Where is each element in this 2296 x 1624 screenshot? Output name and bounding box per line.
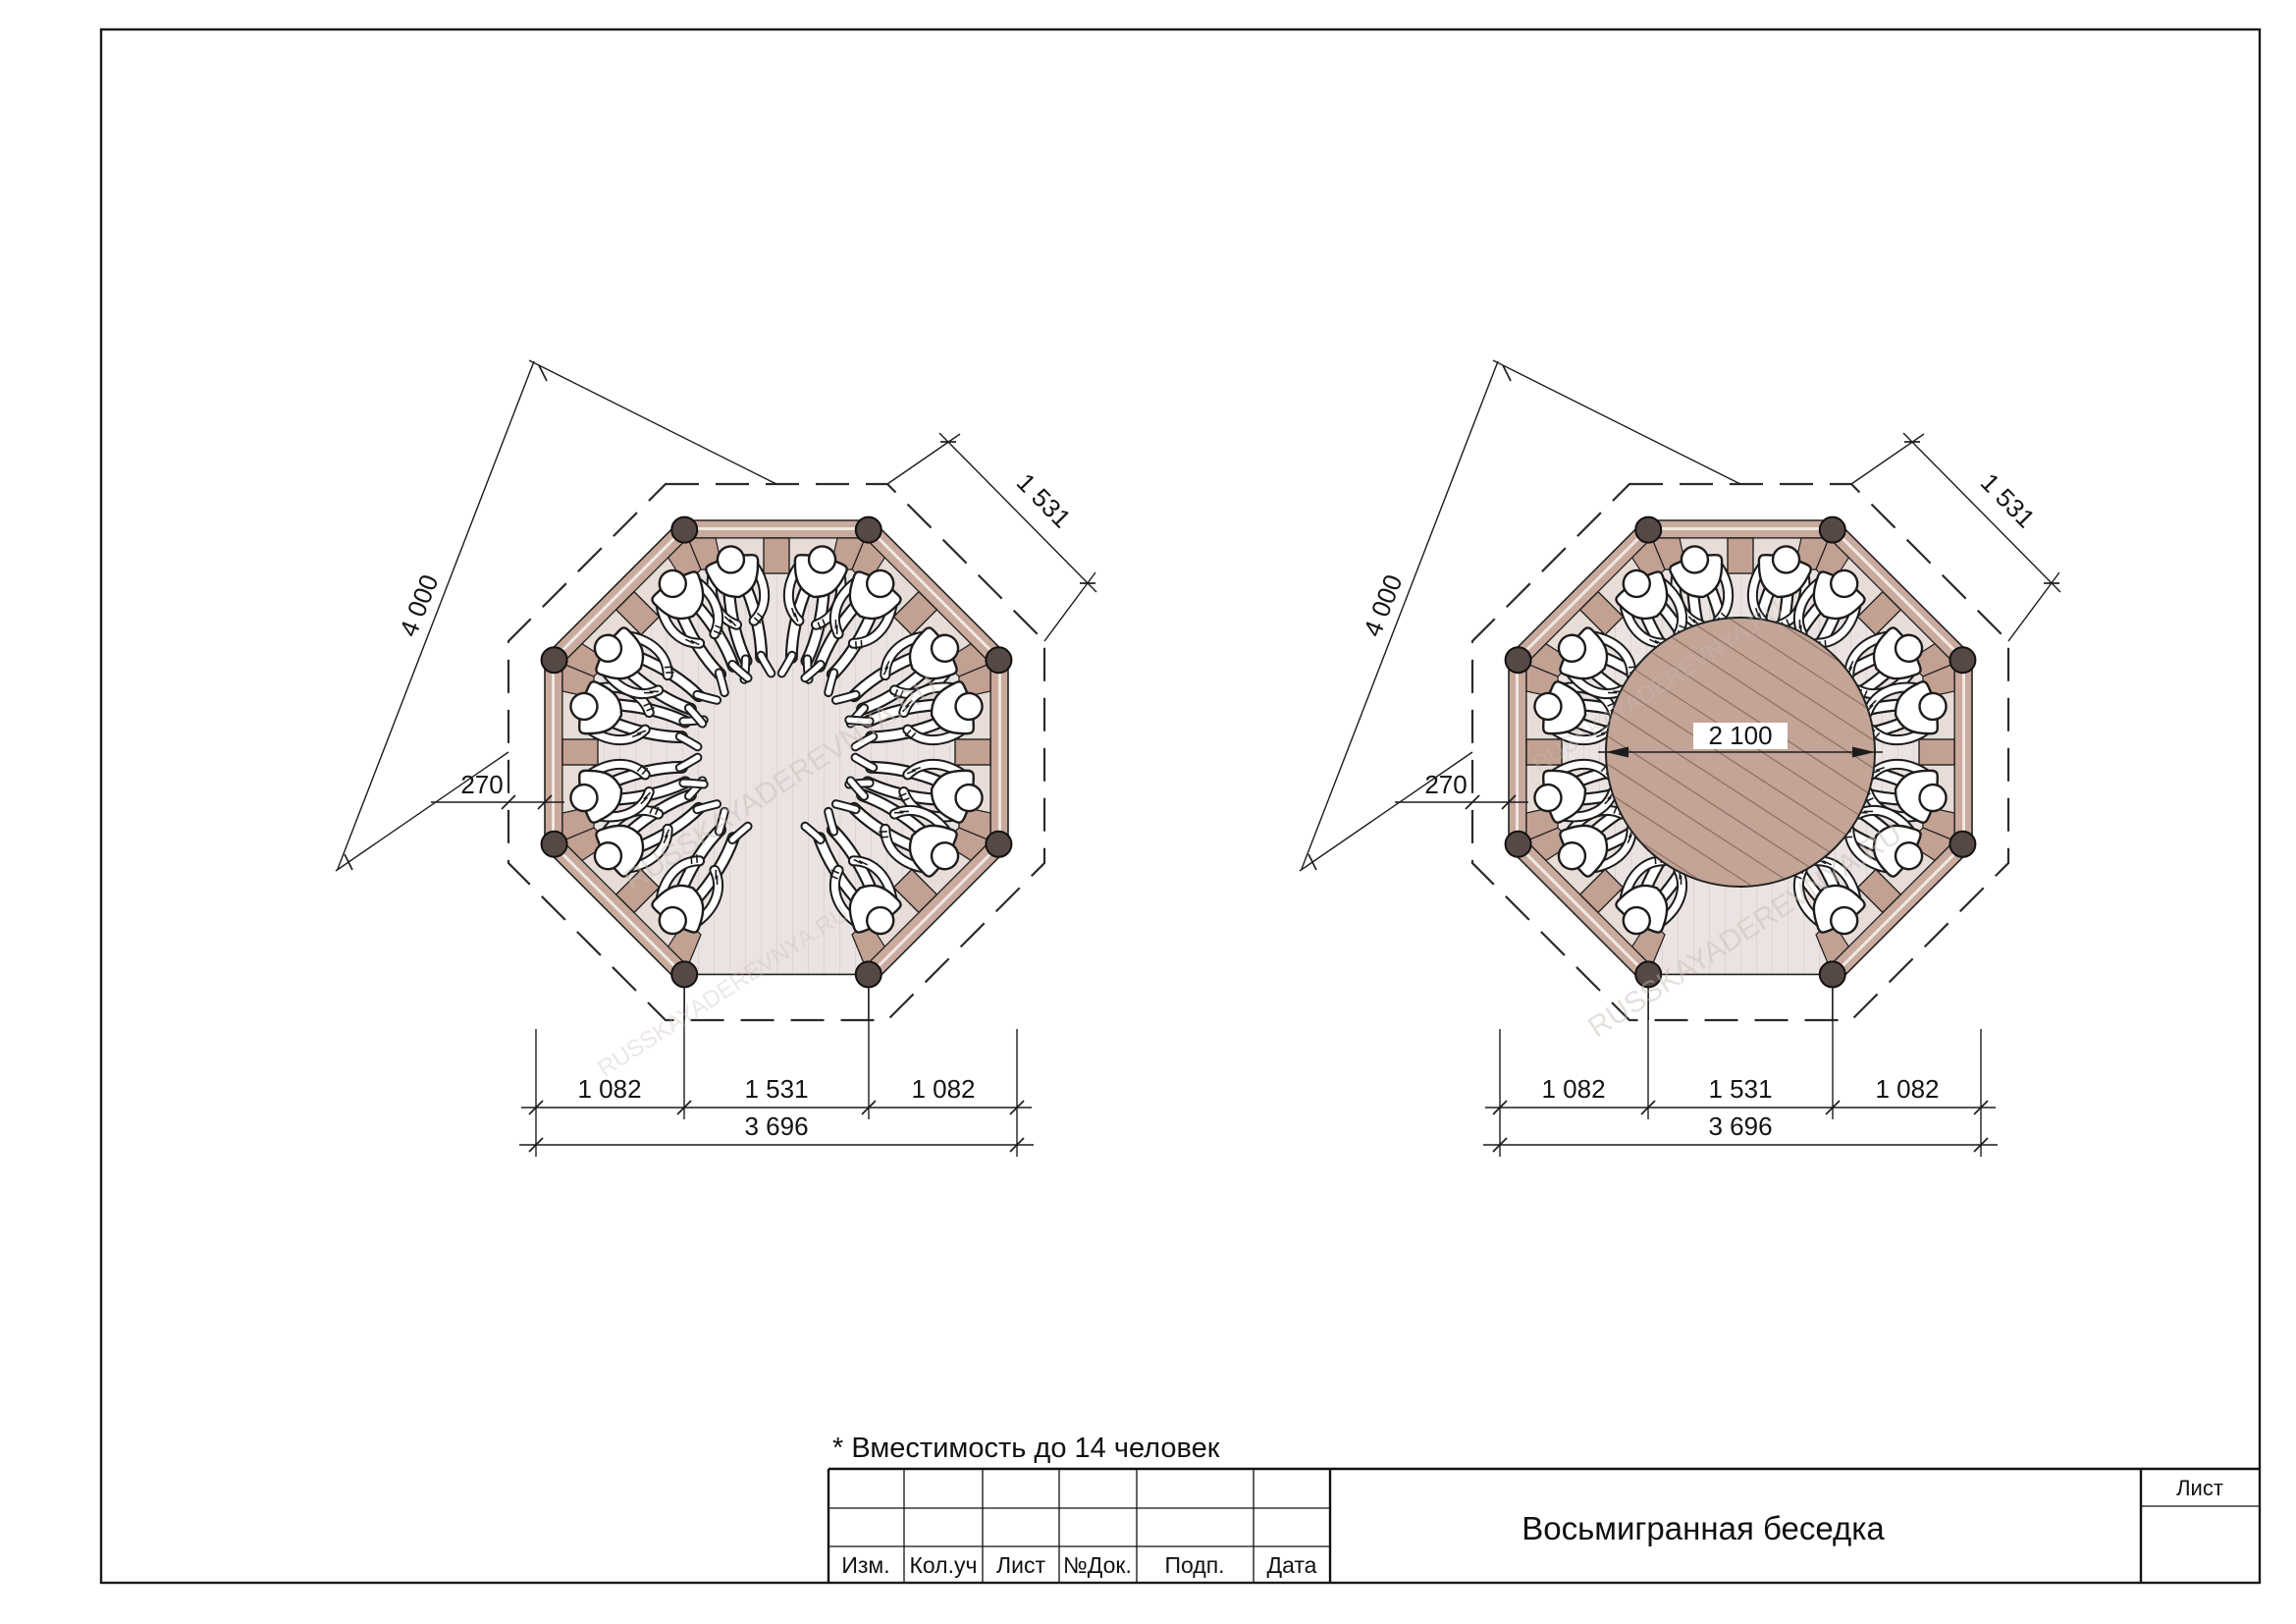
document-title: Восьмигранная беседка	[1522, 1510, 1885, 1546]
col-header-ndok: №Док.	[1063, 1552, 1132, 1578]
capacity-note: * Вместимость до 14 человек	[832, 1433, 1220, 1464]
sheet-label: Лист	[2176, 1476, 2223, 1500]
drawing-sheet: 4 000 1 531 270	[0, 0, 2296, 1624]
col-header-data: Дата	[1267, 1552, 1317, 1578]
col-header-koluch: Кол.уч	[910, 1552, 978, 1578]
dim-label-2100: 2 100	[1708, 721, 1772, 750]
plan-open-gazebo: RUSSKAYADEREVNYA.RU RUSSKAYADEREVNYA.RU	[336, 360, 1096, 1157]
plan-gazebo-with-table: 2 100 RUSSKAYADEREVNYA.RU RUSSKAYADEREVN…	[1300, 360, 2060, 1157]
gazebo-structure	[508, 484, 1044, 1020]
col-header-podp: Подп.	[1164, 1552, 1224, 1578]
col-header-list: Лист	[996, 1552, 1045, 1578]
title-block: Изм. Кол.уч Лист №Док. Подп. Дата Восьми…	[828, 1469, 2260, 1583]
col-header-izm: Изм.	[841, 1552, 889, 1578]
technical-drawing: 4 000 1 531 270	[0, 0, 2296, 1624]
